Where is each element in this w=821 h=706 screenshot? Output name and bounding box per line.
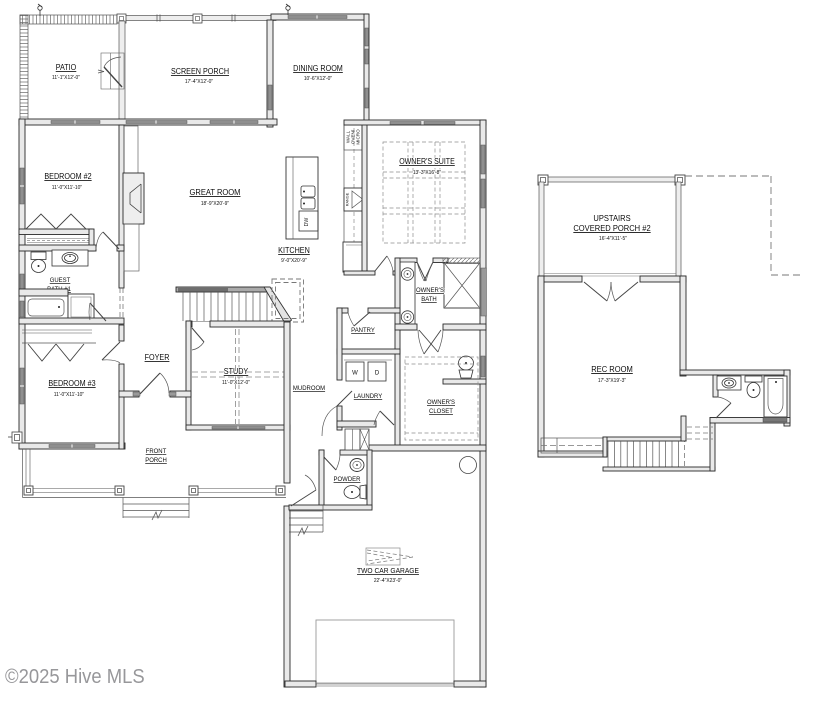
svg-text:10'-6"X12'-0": 10'-6"X12'-0"	[304, 76, 332, 82]
svg-text:FRONT: FRONT	[146, 448, 167, 455]
svg-text:PANTRY: PANTRY	[351, 327, 375, 334]
svg-text:COVERED PORCH #2: COVERED PORCH #2	[573, 224, 651, 234]
svg-text:STUDY: STUDY	[224, 367, 248, 377]
svg-text:LAUNDRY: LAUNDRY	[354, 393, 383, 400]
svg-text:RANGE: RANGE	[346, 192, 350, 206]
svg-text:17'-3"X19'-3": 17'-3"X19'-3"	[598, 378, 626, 384]
svg-text:FOYER: FOYER	[145, 353, 170, 363]
svg-text:MUDROOM: MUDROOM	[293, 385, 325, 392]
svg-text:OWNER'S SUITE: OWNER'S SUITE	[399, 157, 455, 167]
svg-text:TWO CAR GARAGE: TWO CAR GARAGE	[357, 567, 419, 575]
svg-text:OWNER'S: OWNER'S	[416, 287, 444, 294]
svg-text:BEDROOM #2: BEDROOM #2	[44, 172, 91, 182]
svg-text:11'-0"X12'-0": 11'-0"X12'-0"	[222, 380, 250, 386]
svg-text:CLOSET: CLOSET	[429, 408, 453, 415]
svg-text:16'-4"X11'-5": 16'-4"X11'-5"	[599, 236, 627, 242]
svg-text:11'-0"X11'-10": 11'-0"X11'-10"	[52, 185, 82, 191]
svg-text:DW: DW	[304, 218, 310, 227]
svg-text:©2025 Hive MLS: ©2025 Hive MLS	[5, 665, 145, 688]
svg-text:13'-3"X16'-8": 13'-3"X16'-8"	[413, 170, 441, 176]
svg-text:W: W	[352, 371, 358, 377]
svg-text:GUEST: GUEST	[50, 277, 71, 284]
svg-text:9'-0"X20'-9": 9'-0"X20'-9"	[281, 258, 307, 264]
svg-text:11'-1"X12'-0": 11'-1"X12'-0"	[52, 75, 80, 81]
svg-text:KITCHEN: KITCHEN	[278, 246, 310, 256]
svg-text:DINING ROOM: DINING ROOM	[293, 64, 343, 74]
svg-text:REC ROOM: REC ROOM	[591, 365, 633, 375]
svg-text:PATIO: PATIO	[56, 63, 77, 73]
svg-text:BATH: BATH	[421, 296, 437, 303]
svg-text:PORCH: PORCH	[145, 457, 167, 464]
svg-text:GREAT ROOM: GREAT ROOM	[190, 188, 241, 198]
svg-text:BEDROOM #3: BEDROOM #3	[48, 379, 95, 389]
svg-text:MICRO: MICRO	[356, 129, 361, 145]
svg-text:18'-9"X20'-9": 18'-9"X20'-9"	[201, 201, 229, 207]
svg-text:OWNER'S: OWNER'S	[427, 399, 455, 406]
svg-text:22'-4"X23'-0": 22'-4"X23'-0"	[374, 578, 402, 584]
svg-text:UPSTAIRS: UPSTAIRS	[593, 214, 631, 224]
svg-text:17'-4"X12'-0": 17'-4"X12'-0"	[185, 79, 213, 85]
svg-text:11'-0"X11'-10": 11'-0"X11'-10"	[54, 392, 84, 398]
svg-text:POWDER: POWDER	[334, 476, 361, 483]
svg-text:D: D	[375, 371, 380, 377]
svg-text:SCREEN PORCH: SCREEN PORCH	[171, 67, 229, 77]
